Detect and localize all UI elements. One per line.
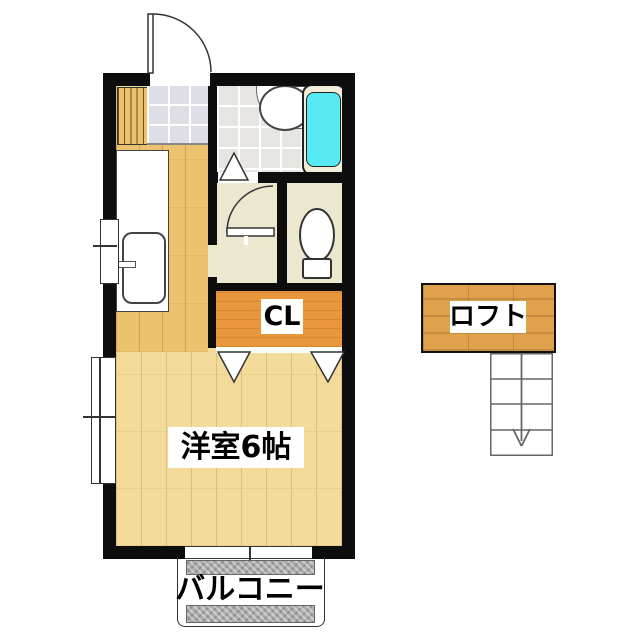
closet-track [216, 347, 342, 353]
hall-entry-opening [208, 245, 217, 277]
entry-slatted-step [117, 87, 149, 145]
entry-tile-floor [147, 86, 208, 145]
bathtub-water [306, 92, 341, 167]
entry-door-icon [148, 14, 211, 73]
wall-hall-left-upper [208, 183, 217, 245]
floor-plan: 洋室6帖 CL ロフト バルコニー [0, 0, 640, 640]
loft-label: ロフト [450, 301, 526, 333]
main-room-label: 洋室6帖 [168, 427, 304, 468]
main-window [91, 357, 116, 484]
hallway-floor [217, 183, 277, 283]
wall-top [103, 73, 355, 86]
wall-closet-top [208, 283, 342, 291]
wall-bath-left [208, 86, 217, 183]
toilet-room-floor [287, 183, 342, 283]
closet-label: CL [261, 299, 303, 334]
kitchen-faucet-icon [116, 261, 136, 268]
kitchen-window [100, 219, 119, 284]
main-window-rail [99, 357, 101, 484]
balcony-label: バルコニー [160, 572, 340, 608]
entry-door-opening [150, 73, 210, 86]
wall-left [103, 73, 116, 559]
kitchen-sink-icon [122, 232, 166, 304]
loft-stairs-icon [490, 354, 553, 456]
wall-toilet-left [277, 183, 287, 283]
kitchen-window-tick [93, 245, 117, 247]
bath-door-opening [218, 172, 258, 183]
wall-closet-left [208, 291, 216, 348]
main-window-tick [83, 416, 116, 418]
wall-right [342, 73, 355, 559]
